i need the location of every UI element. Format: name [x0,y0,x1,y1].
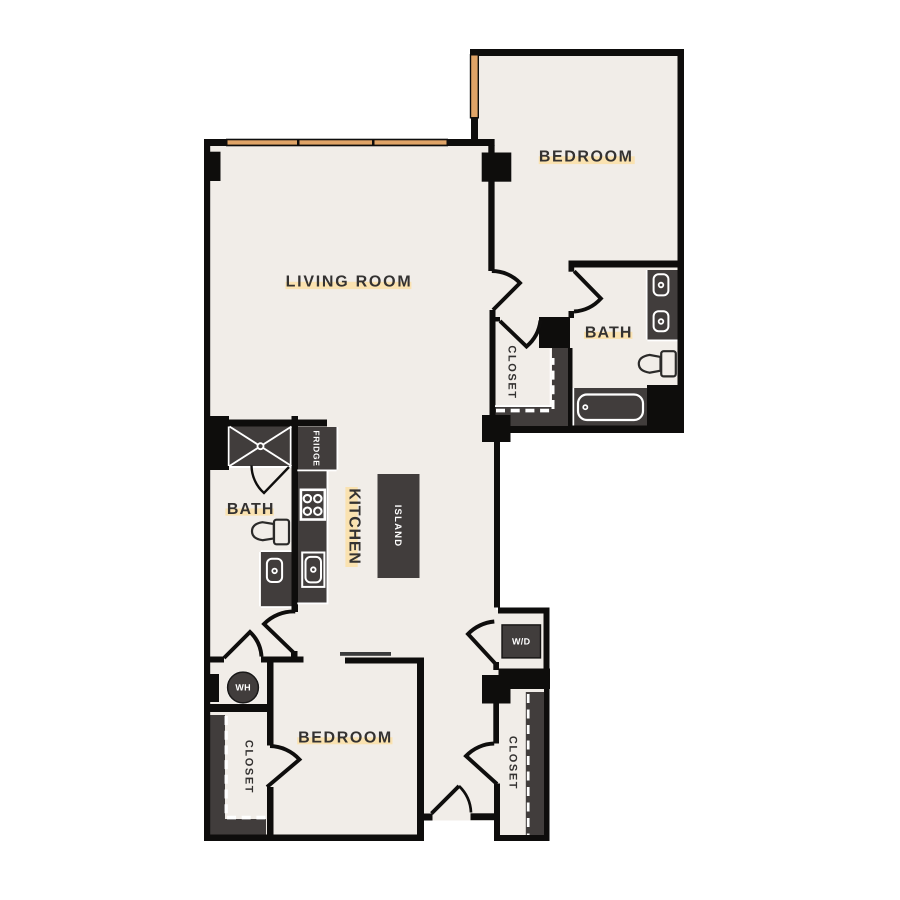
svg-text:BATH: BATH [585,324,633,341]
svg-text:CLOSET: CLOSET [506,736,518,790]
svg-text:FRIDGE: FRIDGE [311,430,321,466]
svg-text:KITCHEN: KITCHEN [345,488,362,564]
svg-text:CLOSET: CLOSET [243,740,255,794]
svg-text:CLOSET: CLOSET [505,345,517,399]
svg-text:ISLAND: ISLAND [392,505,403,548]
svg-text:BEDROOM: BEDROOM [539,148,634,165]
svg-text:W/D: W/D [512,637,531,647]
svg-text:LIVING ROOM: LIVING ROOM [286,274,413,291]
svg-text:BEDROOM: BEDROOM [298,729,393,746]
svg-text:WH: WH [235,682,251,692]
svg-text:BATH: BATH [227,501,275,518]
